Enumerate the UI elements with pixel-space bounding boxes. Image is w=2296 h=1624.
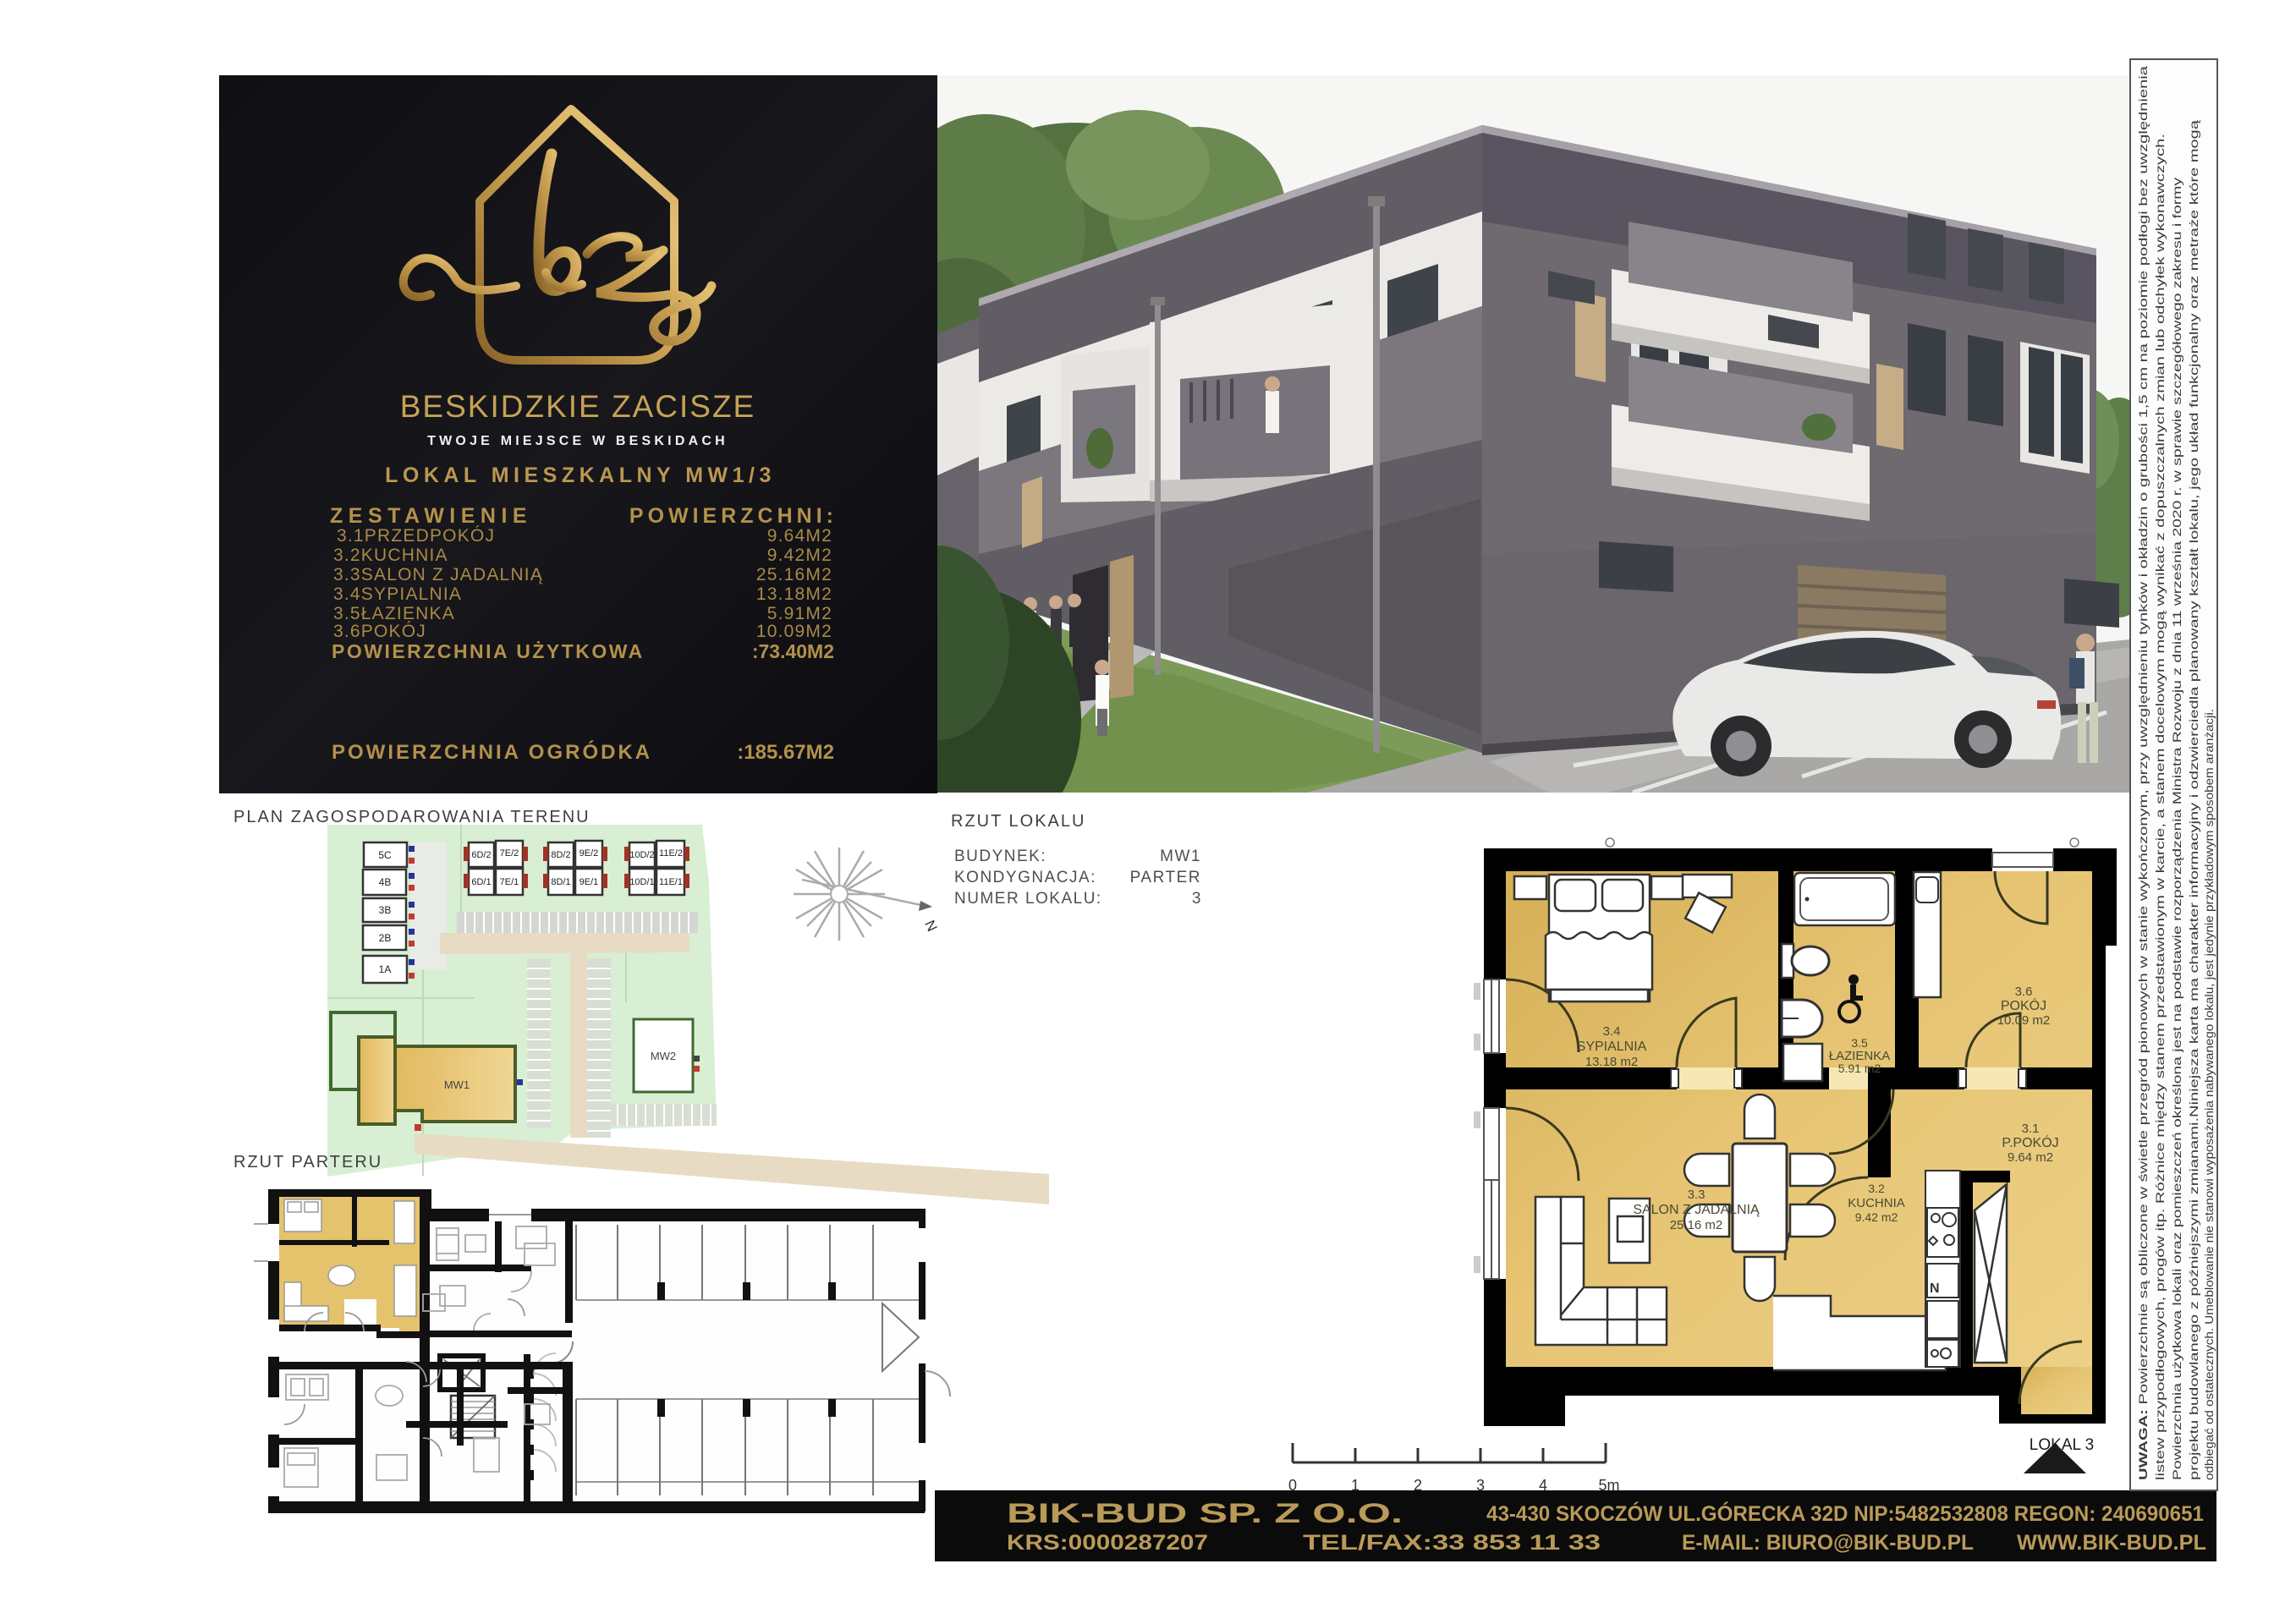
svg-text:9.64 m2: 9.64 m2	[2008, 1150, 2053, 1165]
svg-text:3.3SALON Z JADALNIĄ: 3.3SALON Z JADALNIĄ	[333, 565, 543, 584]
svg-text:10.09M2: 10.09M2	[756, 622, 832, 641]
svg-text:3.4: 3.4	[1603, 1024, 1621, 1039]
svg-text:10D/1: 10D/1	[629, 877, 654, 887]
svg-text:25.16 m2: 25.16 m2	[1670, 1218, 1723, 1232]
svg-text:POWIERZCHNIA OGRÓDKA: POWIERZCHNIA OGRÓDKA	[332, 740, 652, 764]
svg-text:SALON Z JADALNIĄ: SALON Z JADALNIĄ	[1633, 1203, 1760, 1217]
svg-text:10D/2: 10D/2	[629, 850, 654, 860]
svg-text:WWW.BIK-BUD.PL: WWW.BIK-BUD.PL	[2017, 1531, 2206, 1555]
svg-text:PLAN ZAGOSPODAROWANIA TERENU: PLAN ZAGOSPODAROWANIA TERENU	[233, 808, 590, 826]
svg-text:Powierzchnia użytkowa lokali o: Powierzchnia użytkowa lokali oraz pomies…	[2170, 178, 2183, 1480]
svg-text:7E/1: 7E/1	[500, 877, 519, 887]
svg-text:5C: 5C	[378, 849, 392, 861]
svg-text:8D/1: 8D/1	[551, 877, 570, 887]
svg-text:3.2KUCHNIA: 3.2KUCHNIA	[333, 546, 448, 565]
svg-text:3.1: 3.1	[2022, 1122, 2040, 1136]
svg-text:3: 3	[1192, 890, 1202, 908]
svg-text:LOKAL MIESZKALNY MW1/3: LOKAL MIESZKALNY MW1/3	[385, 464, 776, 487]
svg-text:6D/2: 6D/2	[471, 850, 491, 860]
svg-text:BESKIDZKIE ZACISZE: BESKIDZKIE ZACISZE	[400, 389, 755, 424]
svg-text:RZUT PARTERU: RZUT PARTERU	[233, 1153, 382, 1171]
svg-text:7E/2: 7E/2	[500, 848, 519, 859]
svg-text:9.42M2: 9.42M2	[767, 546, 832, 565]
svg-text:6D/1: 6D/1	[471, 877, 491, 887]
svg-text:MW1: MW1	[1160, 848, 1201, 865]
svg-text:3.6POKÓJ: 3.6POKÓJ	[333, 622, 426, 641]
svg-text:KONDYGNACJA:: KONDYGNACJA:	[954, 869, 1096, 886]
svg-text:RZUT LOKALU: RZUT LOKALU	[951, 812, 1085, 831]
svg-text:9.42 m2: 9.42 m2	[1855, 1210, 1898, 1224]
svg-text:projektu budowlanego z później: projektu budowlanego z późniejszymi zmia…	[2187, 120, 2200, 1480]
svg-text::185.67M2: :185.67M2	[737, 741, 834, 764]
svg-text:9.64M2: 9.64M2	[767, 526, 832, 546]
svg-text:25.16M2: 25.16M2	[756, 565, 832, 584]
svg-text:POWIERZCHNIA UŻYTKOWA: POWIERZCHNIA UŻYTKOWA	[332, 640, 645, 662]
svg-text:POKÓJ: POKÓJ	[2001, 997, 2046, 1013]
svg-text:5.91M2: 5.91M2	[767, 604, 832, 623]
svg-text:BIK-BUD SP. Z O.O.: BIK-BUD SP. Z O.O.	[1007, 1498, 1403, 1528]
svg-text:2B: 2B	[379, 932, 392, 944]
svg-text:KRS:0000287207: KRS:0000287207	[1007, 1531, 1208, 1555]
svg-text:SYPIALNIA: SYPIALNIA	[1577, 1040, 1647, 1054]
svg-text:3.5ŁAZIENKA: 3.5ŁAZIENKA	[333, 604, 455, 623]
svg-text:4B: 4B	[379, 876, 392, 888]
svg-text:BUDYNEK:: BUDYNEK:	[954, 848, 1046, 865]
svg-text:listew przypodłogowych, progów: listew przypodłogowych, progów itp. Różn…	[2153, 134, 2167, 1480]
svg-text::73.40M2: :73.40M2	[752, 640, 834, 662]
svg-text:POWIERZCHNI:: POWIERZCHNI:	[629, 504, 838, 528]
svg-text:UWAGA: Powierzchnie są obliczo: UWAGA: Powierzchnie są obliczone w świet…	[2136, 66, 2150, 1480]
svg-text:MW1: MW1	[444, 1078, 470, 1091]
svg-text:PARTER: PARTER	[1130, 869, 1201, 886]
svg-text:TEL/FAX:33 853 11 33: TEL/FAX:33 853 11 33	[1303, 1531, 1601, 1555]
svg-text:TWOJE MIEJSCE W BESKIDACH: TWOJE MIEJSCE W BESKIDACH	[427, 434, 728, 448]
svg-text:3.5: 3.5	[1851, 1036, 1868, 1050]
svg-text:MW2: MW2	[651, 1050, 676, 1062]
svg-text:3.2: 3.2	[1868, 1182, 1885, 1195]
svg-text:8D/2: 8D/2	[551, 850, 570, 860]
svg-text:odbiegać od ostatecznych. Umeb: odbiegać od ostatecznych. Umeblowanie ni…	[2202, 709, 2216, 1480]
svg-text:KUCHNIA: KUCHNIA	[1848, 1196, 1905, 1210]
svg-text:10.09 m2: 10.09 m2	[1997, 1013, 2051, 1028]
svg-text:13.18M2: 13.18M2	[756, 584, 832, 604]
svg-text:N: N	[1930, 1281, 1940, 1296]
svg-text:ZESTAWIENIE: ZESTAWIENIE	[330, 504, 532, 528]
svg-text:11E/1: 11E/1	[659, 877, 683, 887]
svg-text:43-430 SKOCZÓW UL.GÓRECKA 32D: 43-430 SKOCZÓW UL.GÓRECKA 32D NIP:548253…	[1486, 1501, 2204, 1526]
svg-text:P.POKÓJ: P.POKÓJ	[2002, 1134, 2058, 1150]
svg-text:11E/2: 11E/2	[659, 848, 683, 859]
svg-text:NUMER LOKALU:: NUMER LOKALU:	[954, 890, 1102, 908]
svg-text:E-MAIL: BIURO@BIK-BUD.PL: E-MAIL: BIURO@BIK-BUD.PL	[1682, 1531, 1974, 1555]
svg-text:3.3: 3.3	[1688, 1188, 1706, 1202]
svg-text:3.4SYPIALNIA: 3.4SYPIALNIA	[333, 584, 462, 604]
svg-text:9E/2: 9E/2	[579, 848, 599, 859]
svg-text:3.6: 3.6	[2015, 985, 2033, 999]
svg-text:3B: 3B	[379, 904, 392, 916]
svg-text:5.91 m2: 5.91 m2	[1838, 1062, 1881, 1075]
svg-text:9E/1: 9E/1	[579, 877, 599, 887]
svg-text:13.18 m2: 13.18 m2	[1585, 1055, 1639, 1069]
svg-text:3.1PRZEDPOKÓJ: 3.1PRZEDPOKÓJ	[337, 526, 495, 546]
svg-text:1A: 1A	[379, 963, 392, 975]
